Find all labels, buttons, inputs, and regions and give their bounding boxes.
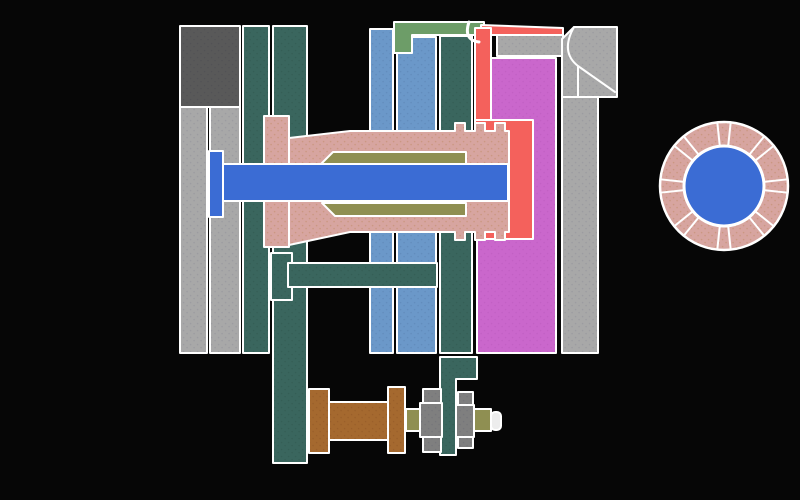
ejector-crossbar — [288, 263, 437, 287]
right-mounting-plate — [562, 97, 598, 353]
rod-end-cap — [491, 412, 501, 430]
melt-channel-top — [481, 25, 563, 35]
ring-hub — [684, 146, 764, 226]
front-view-layer — [660, 122, 788, 250]
nut-right-top — [458, 392, 473, 405]
core-rod — [222, 164, 508, 201]
top-clamp-block — [180, 26, 240, 107]
spacer-flange-right — [388, 387, 405, 453]
cross-section-layer — [180, 22, 617, 463]
nut-left-mid — [420, 403, 442, 437]
core-rod-head — [209, 151, 223, 217]
nut-left-top — [423, 389, 441, 403]
back-plate-outer — [180, 107, 207, 353]
washer-right — [474, 409, 491, 431]
washer-left — [406, 409, 421, 431]
nut-right-bottom — [458, 437, 473, 448]
back-plate-inner — [210, 107, 240, 353]
spacer-tube — [329, 402, 388, 440]
ring-front-view — [660, 122, 788, 250]
liner-lower — [322, 203, 466, 216]
screenshot-root — [0, 0, 800, 500]
nut-left-bottom — [423, 437, 441, 452]
top-gray-band — [497, 35, 563, 56]
diagram-canvas — [0, 0, 800, 500]
nut-right-mid — [456, 405, 474, 437]
spacer-flange-left — [309, 389, 329, 453]
